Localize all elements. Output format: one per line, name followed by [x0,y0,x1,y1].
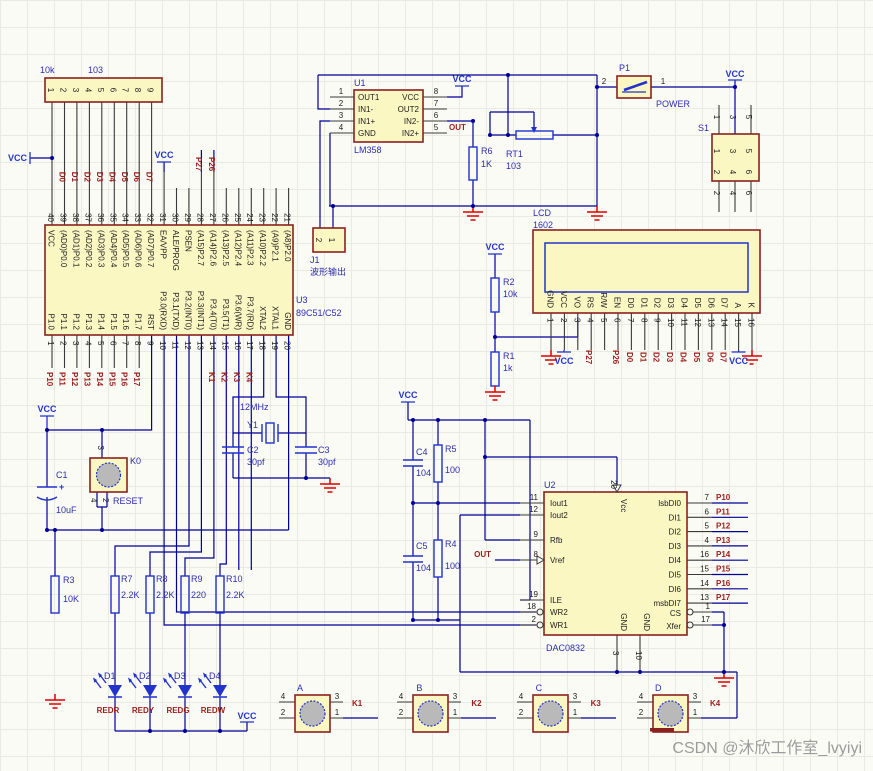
mcu-pin-label: (AD4)P0.4 [109,230,118,268]
mcu-pin-number: 9 [146,341,155,346]
mcu-pin-label: (A12)P2.4 [233,230,242,267]
button-c-cap [538,701,563,726]
r2-value: 10k [503,289,518,299]
mcu-pin-number: 33 [133,213,142,222]
rn1-pin-number: 2 [58,88,67,93]
net-label-p: P11 [716,507,730,516]
lcd-pin-label: A [733,303,742,309]
mcu-pin-label: P3.1(TXD) [171,292,180,330]
lcd-pin-number: 5 [599,318,608,323]
s1-pin-number: 1 [712,149,721,154]
mcu-pin-label: (AD2)P0.2 [84,230,93,268]
u2-pin-number: 12 [529,505,538,514]
lcd-pin-label: D6 [706,298,715,309]
net-label-p: P13 [716,536,731,545]
u1-pin-number: 6 [434,111,439,120]
y1-crystal-plates [262,424,278,442]
c1-value: 10uF [56,505,77,515]
lcd-pin-label: VCC [559,291,568,308]
u2-pin-label: DI1 [669,513,682,522]
button-pin-number: 2 [399,708,404,717]
mcu-pin-number: 36 [96,213,105,222]
u2-pin-number: 11 [530,493,539,502]
button-pin-number: 3 [693,692,698,701]
net-label-d: D6 [705,352,714,363]
lcd-pin-number: 4 [586,318,595,323]
r1-ref: R1 [503,351,515,361]
mcu-pin-number: 8 [133,341,142,346]
u2-pin-number: 14 [700,579,709,588]
u2-vcc-label: Vcc [619,499,628,512]
u1-pin-label: OUT1 [358,93,380,102]
d-bus-labels-lcd: D0D1D2D3D4D5D6D7 [625,352,728,363]
mcu-pin-label: ALE/PROG [171,230,180,271]
j1-ref: J1 [310,255,320,265]
button-k-ref: K4 [710,699,721,708]
k0-pin4-number: 4 [89,498,98,503]
mcu-pin-number: 17 [245,341,254,350]
rn1-pin-number: 7 [121,88,130,93]
j1-pin-number: 1 [327,238,336,243]
reset-pushbutton-cap [97,463,121,487]
net-label-p: P17 [716,593,731,602]
rn1-pin-number: 4 [83,88,92,93]
u2-pin20-number: 20 [609,480,618,489]
net-label-d: D6 [132,172,141,183]
u1-pin-number: 5 [434,123,439,132]
k0-pin3-number: 3 [96,446,105,451]
lcd-pin-number: 12 [693,318,702,327]
s1-outside-top-numbers: 135 [712,115,753,120]
mcu-pin-number: 11 [171,341,180,350]
net-label-p: P16 [120,372,129,387]
mcu-pin-label: PSEN [183,230,192,252]
u1-ref: U1 [354,78,366,88]
u2-pin-label: DI5 [669,571,682,580]
mcu-pin-number: 40 [46,213,55,222]
y1-ref: Y1 [247,420,258,430]
r2-resistor [491,278,499,312]
r5-ref: R5 [445,444,457,454]
mcu-pin-label: P3.0(RXD) [159,291,168,330]
mcu-pin-label: (AD5)P0.5 [121,230,130,268]
u2-pin-number: 18 [527,602,536,611]
vcc-label: VCC [237,711,257,721]
u2-pin-label: DI2 [669,528,682,537]
net-label-p: P15 [107,372,116,387]
mcu-pin-number: 21 [283,213,292,222]
mcu-pin-label: P3.2(INT0) [183,291,192,330]
mcu-pin-number: 27 [208,213,217,222]
mcu-pin-number: 18 [258,341,267,350]
lcd-pin-label: D3 [666,298,675,309]
u2-pin-number: 8 [534,550,539,559]
u2-pin-label: DI6 [669,585,682,594]
net-label-k: K3 [232,372,241,383]
u1-pin-label: IN2+ [402,129,419,138]
u1-pin-label: GND [358,129,376,138]
rn1-value1: 10k [40,65,55,75]
mcu-pin-number: 22 [270,213,279,222]
r6-ref: R6 [481,146,493,156]
mcu-pin-number: 25 [233,213,242,222]
u2-pin-number: 9 [534,530,539,539]
u1-pin-label: VCC [402,93,419,102]
s1-inside-row1: 135 [712,149,753,154]
key-and-led-net-wires [115,335,536,625]
mcu-pin-label: P1.7 [134,314,143,331]
u1-pin-number: 2 [339,99,344,108]
u1-pin-label: IN1+ [358,117,375,126]
lcd-pin-number: 9 [653,318,662,323]
rn1-pin-numbers: 123456789 [46,88,155,93]
net-label-p: P15 [716,565,731,574]
r10-value: 2.2K [226,590,245,600]
button-b-cap [418,701,443,726]
vcc-label: VCC [452,74,472,84]
lcd-pin-label: GND [546,290,555,308]
r4-resistor [434,540,442,577]
net-label-d: D1 [638,352,647,363]
u2-pin-number: 5 [705,522,710,531]
lcd-pin-number: 1 [546,318,555,323]
mcu-pin-label: (A11)P2.3 [246,230,255,266]
net-label-p: P10 [716,493,731,502]
y1-frequency: 12MHz [240,402,269,412]
net-label-d: D5 [692,352,701,363]
mcu-pin-number: 7 [121,341,130,346]
mcu-pin-number: 24 [245,213,254,222]
r3-resistor [51,576,59,613]
r9-ref: R9 [191,574,203,584]
net-label-d: D3 [95,172,104,183]
p1-pin1-number: 1 [661,77,666,86]
lcd-pin-numbers: 12345678910111213141516 [546,318,756,327]
rn1-pin-number: 1 [46,88,55,93]
mcu-pin-number: 20 [283,341,292,350]
rt1-potentiometer [516,131,553,139]
r10-ref: R10 [226,574,243,584]
mcu-pin-number: 13 [195,341,204,350]
led-net-label: REDY [132,706,155,715]
net-label-p: P16 [716,579,731,588]
r8-resistor [146,576,154,613]
s1-pin-number: 6 [744,191,753,196]
d-bus-labels-rn: D0D1D2D3D4D5D6D7 [58,172,154,183]
r2-ref: R2 [503,277,515,287]
mcu-pin-label: P1.1 [59,314,68,331]
net-label-d: D0 [58,172,67,183]
cs-bubble [687,609,693,615]
net-label-p: P10 [45,372,54,387]
u2-part: DAC0832 [546,643,585,653]
lcd-pin-number: 7 [626,318,635,323]
mcu-pin-number: 29 [183,213,192,222]
mcu-pin-label: P3.7(RD) [246,297,255,331]
lcd-pin-label: D0 [626,298,635,309]
net-label-out: OUT [474,550,491,559]
net-label-p: P17 [132,372,141,387]
csdn-watermark: CSDN @沐欣工作室_lvyiyi [672,739,862,757]
u2-pin-label: WR1 [550,621,568,630]
led-net-label: REDR [97,706,120,715]
u1-pin-number: 4 [339,123,344,132]
mcu-pin-label: (AD3)P0.3 [96,230,105,268]
lcd-pin-number: 6 [613,318,622,323]
c3-value: 30pf [318,457,336,467]
button-d-cap [658,701,683,726]
u2-pin10-number: 10 [634,651,643,660]
button-pin-number: 1 [693,708,698,717]
xfer-bubble [687,622,693,628]
mcu-pin-label: P1.0 [47,314,56,331]
u2-pin-label: Rfb [550,536,563,545]
mcu-pin-number: 32 [146,213,155,222]
net-label-d: D0 [625,352,634,363]
u2-pin-number: 15 [700,565,709,574]
r1-value: 1k [503,363,513,373]
button-stubs [279,702,701,718]
led-ref: D1 [104,671,116,681]
mcu-pin-label: P1.2 [71,314,80,331]
u2-pin-label: Iout2 [550,511,568,520]
lcd-pin-number: 8 [639,318,648,323]
mcu-pin-label: P1.3 [84,314,93,331]
c5-capacitor [403,556,423,562]
net-label-p27: P27 [584,350,593,365]
mcu-bottom-stubs [52,335,139,368]
lcd-ref: LCD [533,208,552,218]
net-label-d: D7 [145,172,154,183]
button-k-ref: K1 [352,699,363,708]
net-label-k: K1 [207,372,216,383]
r10-resistor [216,576,224,613]
button-pin-number: 3 [573,692,578,701]
lcd-pin-label: VO [572,296,581,308]
u2-pin-label: WR2 [550,608,568,617]
net-label-d: D1 [70,172,79,183]
reset-net-label: RESET [113,496,144,506]
mcu-pin-number: 10 [158,341,167,350]
u2-xfer-label: Xfer [666,622,681,631]
u2-pin-label: lsbDI0 [658,499,681,508]
s1-inside-row2: 246 [712,170,753,175]
mcu-pin-number: 31 [158,213,167,222]
mcu-pin-number: 16 [233,341,242,350]
u1-pin-label: IN1- [358,105,373,114]
mcu-pin-label: VCC [47,230,56,247]
u1-pin-number: 8 [434,87,439,96]
net-label-d: D3 [665,352,674,363]
led-ref: D4 [209,671,221,681]
led-ref: D2 [139,671,151,681]
button-name: B [416,683,422,693]
r5-value: 100 [445,465,460,475]
u2-pin-label: Iout1 [550,499,568,508]
button-pin-number: 2 [639,708,644,717]
mcu-pin-number: 6 [108,341,117,346]
u2-pin-label: DI3 [669,542,682,551]
u2-pin-label: msbDI7 [653,599,681,608]
button-pin-number: 1 [573,708,578,717]
lcd-pin-label: RS [586,297,595,308]
s1-pin-number: 5 [744,115,753,120]
mcu-pin-number: 39 [58,213,67,222]
mcu-pin-number: 19 [270,341,279,350]
u1-pin-number: 1 [339,87,344,96]
c4-ref: C4 [416,447,428,457]
r7-value: 2.2K [121,590,140,600]
u2-pin-label: ILE [550,596,562,605]
button-name: D [655,683,662,693]
c2-value: 30pf [247,457,265,467]
mcu-bottom-pin-numbers: 1234567891011121314151617181920 [46,341,292,350]
mcu-pin-number: 5 [96,341,105,346]
button-pin-number: 4 [281,692,286,701]
u2-pin-label: DI4 [669,556,682,565]
button-k-ref: K3 [591,699,602,708]
net-label-p26: P26 [207,157,216,172]
lcd-pin-number: 15 [733,318,742,327]
button-pin-number: 3 [335,692,340,701]
net-label-p: P13 [82,372,91,387]
s1-pin-number: 5 [744,149,753,154]
lcd-pin-label: D4 [680,298,689,309]
s1-pin-number: 4 [728,191,737,196]
mcu-part: 89C51/C52 [296,308,342,318]
wr2-bubble [537,609,543,615]
rn1-pin-number: 8 [133,88,142,93]
vcc-label: VCC [485,242,505,252]
u1-pin-label: IN2- [404,117,419,126]
mcu-pin-label: (A10)P2.2 [258,230,267,267]
vcc-label: VCC [554,356,574,366]
mcu-pin-label: GND [283,312,292,330]
lcd-pin-number: 13 [706,318,715,327]
rn1-pin-number: 6 [108,88,117,93]
mcu-pin-number: 2 [58,341,67,346]
s1-ref: S1 [698,123,709,133]
c1-ref: C1 [56,470,68,480]
net-label-p27: P27 [194,157,203,172]
mcu-pin-number: 26 [220,213,229,222]
net-label-p: P14 [716,550,731,559]
vcc-label: VCC [725,69,745,79]
mcu-pin-label: P1.6 [121,314,130,331]
mcu-pin-label: (AD7)P0.7 [146,230,155,268]
r3-ref: R3 [63,575,75,585]
c5-ref: C5 [416,541,428,551]
lcd-pin-label: K [747,303,756,309]
lcd-pin-label: D1 [639,298,648,309]
r7-resistor [111,576,119,613]
p1-pin2-number: 2 [602,77,607,86]
lcd-pin-label: D2 [653,298,662,309]
c3-capacitor [295,447,317,453]
net-label-p: P12 [70,372,79,387]
lcd-pin-label: D7 [720,298,729,309]
c2-ref: C2 [247,445,259,455]
u2-pin3-number: 3 [611,651,620,656]
s1-pin-number: 2 [712,170,721,175]
button-k-ref: K2 [471,699,482,708]
lcd-pin-label: D5 [693,298,702,309]
r3-value: 10K [63,594,79,604]
lcd-pin-number: 10 [666,318,675,327]
button-pin-number: 1 [335,708,340,717]
j1-pin-number: 2 [314,238,323,243]
net-label-d: D2 [652,352,661,363]
net-label-out: OUT [449,123,466,132]
net-label-p: P12 [716,522,731,531]
mcu-pin-label: P1.5 [109,314,118,331]
button-a-cap [300,701,325,726]
button-pin-number: 2 [281,708,286,717]
mcu-pin-number: 30 [171,213,180,222]
r4-ref: R4 [445,539,457,549]
button-name: C [536,683,543,693]
c3-ref: C3 [318,445,330,455]
mcu-pin-number: 14 [208,341,217,350]
rn1-pin-number: 3 [71,88,80,93]
u2-pin-number: 2 [532,615,537,624]
power-label: POWER [656,99,691,109]
rn1-pin-number: 9 [146,88,155,93]
mcu-top-stubs [52,102,289,225]
led-net-label: REDG [166,706,189,715]
s1-outside-bottom-numbers: 246 [712,191,753,196]
mcu-pin-label: (A9)P2.1 [271,230,280,262]
button-pin-number: 1 [453,708,458,717]
u2-gnd-label: GND [642,613,651,631]
mcu-pin-number: 23 [258,213,267,222]
s1-pin-number: 2 [712,191,721,196]
u1-pin-number: 7 [434,99,439,108]
r8-ref: R8 [156,574,168,584]
s1-pin-number: 4 [728,170,737,175]
c2-capacitor [222,447,244,453]
led-refs: D1D2D3D4 [104,671,221,681]
r6-value: 1K [481,159,492,169]
rn1-pin-number: 5 [96,88,105,93]
mcu-pin-label: (A14)P2.6 [208,230,217,267]
c1-polarity: + [59,482,64,492]
lcd-pin-number: 11 [680,318,689,327]
k-bus-labels-mcu: K1K2K3K4 [207,372,253,383]
net-label-d: D2 [82,172,91,183]
led-ref: D3 [174,671,186,681]
lcd-pin-number: 3 [572,318,581,323]
lcd-pin-label: R/W [599,292,608,308]
j1-description: 波形输出 [310,266,346,277]
vcc-label: VCC [398,390,418,400]
mcu-pin-number: 35 [108,213,117,222]
mcu-pin-label: (A8)P2.0 [283,230,292,262]
s1-pin-number: 3 [728,149,737,154]
lcd-pin-label: EN [613,297,622,308]
mcu-pin-number: 3 [71,341,80,346]
p-bus-labels-mcu: P10P11P12P13P14P15P16P17 [45,372,141,387]
u2-right-pin-numbers: 765416151413 [700,493,709,602]
mcu-pin-label: RST [146,314,155,330]
mcu-pin-number: 38 [71,213,80,222]
u2-pin-number: 7 [705,493,710,502]
r4-value: 100 [445,561,460,571]
mcu-pin-label: P3.6(WR) [233,295,242,330]
lcd-part: 1602 [533,220,553,230]
net-label-k: K2 [219,372,228,383]
mcu-pin-label: (AD6)P0.6 [134,230,143,268]
